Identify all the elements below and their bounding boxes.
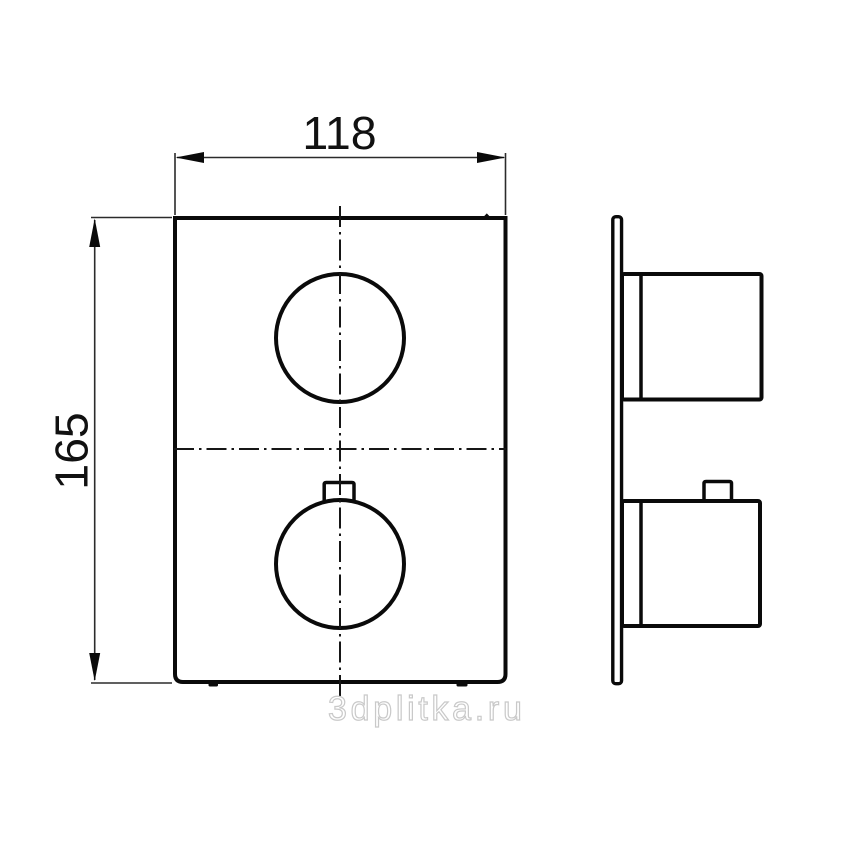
svg-text:3dplitka.ru: 3dplitka.ru <box>328 690 526 728</box>
svg-text:165: 165 <box>46 412 98 490</box>
svg-text:118: 118 <box>302 107 376 159</box>
